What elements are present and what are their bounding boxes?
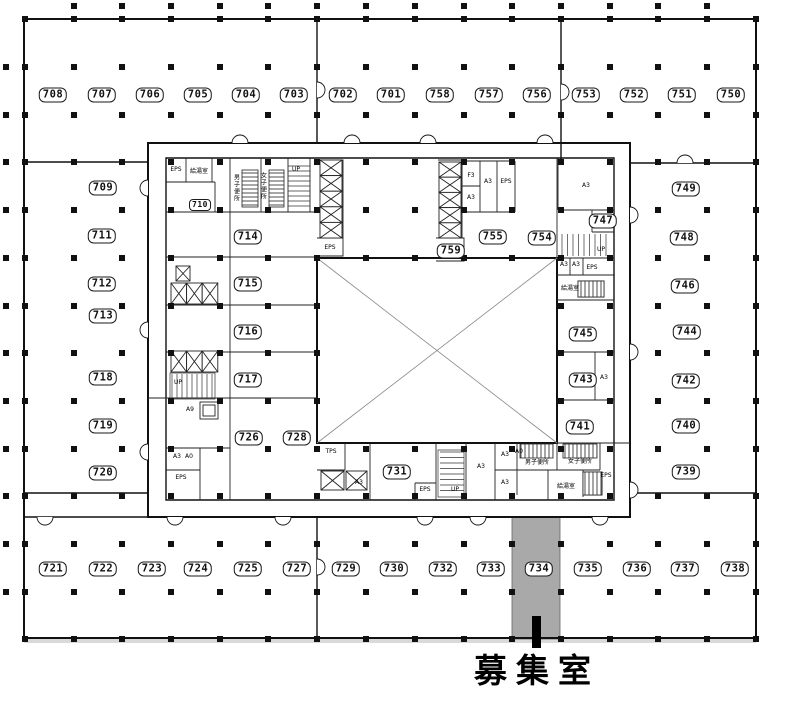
- room-badge-750: 750: [717, 88, 745, 103]
- utility-label: A0: [185, 454, 193, 460]
- floor-plan-drawing: [0, 0, 787, 718]
- utility-label: TPS: [325, 449, 336, 455]
- room-badge-756: 756: [523, 88, 551, 103]
- room-badge-737: 737: [671, 562, 699, 577]
- utility-label: EPS: [170, 167, 181, 173]
- utility-label: 女子便所: [260, 172, 267, 200]
- room-badge-703: 703: [280, 88, 308, 103]
- room-badge-725: 725: [234, 562, 262, 577]
- utility-label: A3: [501, 452, 509, 458]
- utility-label: A3: [501, 480, 509, 486]
- utility-label: EPS: [600, 473, 611, 479]
- utility-label: EPS: [175, 475, 186, 481]
- utility-label: A9: [186, 407, 194, 413]
- room-badge-752: 752: [620, 88, 648, 103]
- room-badge-758: 758: [426, 88, 454, 103]
- room-badge-722: 722: [89, 562, 117, 577]
- utility-label: EPS: [500, 179, 511, 185]
- room-badge-702: 702: [329, 88, 357, 103]
- room-badge-748: 748: [670, 231, 698, 246]
- room-badge-727: 727: [283, 562, 311, 577]
- utility-label: A3: [484, 179, 492, 185]
- utility-label: F3: [467, 173, 474, 179]
- courtyard-x-diagonals: [317, 258, 557, 443]
- room-badge-720: 720: [89, 466, 117, 481]
- room-badge-732: 732: [429, 562, 457, 577]
- room-badge-741: 741: [566, 420, 594, 435]
- room-badge-759: 759: [437, 244, 465, 259]
- utility-label: UP: [451, 487, 459, 493]
- utility-label: A3: [477, 464, 485, 470]
- room-badge-726: 726: [235, 431, 263, 446]
- room-badge-708: 708: [39, 88, 67, 103]
- utility-label: UP: [174, 380, 182, 386]
- room-badge-757: 757: [475, 88, 503, 103]
- utility-label: A3: [600, 375, 608, 381]
- room-badge-710: 710: [189, 199, 211, 211]
- room-badge-723: 723: [138, 562, 166, 577]
- room-badge-704: 704: [232, 88, 260, 103]
- ground-line: [24, 639, 756, 643]
- utility-label: 男子便所: [525, 460, 549, 466]
- room-badge-755: 755: [479, 230, 507, 245]
- utility-label: A3: [173, 454, 181, 460]
- room-badge-709: 709: [89, 181, 117, 196]
- utility-label: 給湯室: [561, 286, 579, 292]
- room-badge-738: 738: [721, 562, 749, 577]
- utility-label: 男子便所: [233, 174, 240, 202]
- room-badge-746: 746: [671, 279, 699, 294]
- room-badge-711: 711: [88, 229, 116, 244]
- room-badge-745: 745: [569, 327, 597, 342]
- utility-label: A3: [560, 262, 568, 268]
- room-badge-731: 731: [383, 465, 411, 480]
- room-badge-751: 751: [668, 88, 696, 103]
- available-room-label: 募集室: [474, 644, 600, 692]
- utility-label: 給湯室: [190, 169, 208, 175]
- room-badge-754: 754: [528, 231, 556, 246]
- room-badge-724: 724: [184, 562, 212, 577]
- room-badge-753: 753: [572, 88, 600, 103]
- toilet-stalls-hatching: [242, 170, 604, 495]
- room-badge-721: 721: [39, 562, 67, 577]
- utility-label: EPS: [324, 245, 335, 251]
- utility-label: A3: [355, 480, 363, 486]
- utility-label: UP: [292, 167, 300, 173]
- room-badge-707: 707: [88, 88, 116, 103]
- utility-label: 給湯室: [557, 484, 575, 490]
- room-badge-713: 713: [89, 309, 117, 324]
- utility-label: 女子便所: [568, 459, 592, 465]
- room-badge-717: 717: [234, 373, 262, 388]
- floor-plan: 7087077067057047037027017587577567537527…: [0, 0, 787, 718]
- room-badge-716: 716: [234, 325, 262, 340]
- room-badge-706: 706: [136, 88, 164, 103]
- room-badge-718: 718: [89, 371, 117, 386]
- utility-label: A3: [467, 195, 475, 201]
- room-badge-734: 734: [525, 562, 553, 577]
- room-badge-736: 736: [623, 562, 651, 577]
- room-badge-743: 743: [569, 373, 597, 388]
- secondary-walls: [24, 19, 756, 638]
- utility-label: A3: [572, 262, 580, 268]
- room-badge-749: 749: [672, 182, 700, 197]
- room-badge-730: 730: [380, 562, 408, 577]
- utility-label: EPS: [419, 487, 430, 493]
- room-badge-705: 705: [184, 88, 212, 103]
- room-badge-714: 714: [234, 230, 262, 245]
- room-badge-728: 728: [283, 431, 311, 446]
- room-badge-719: 719: [89, 419, 117, 434]
- room-badge-739: 739: [672, 465, 700, 480]
- room-badge-740: 740: [672, 419, 700, 434]
- room-badge-701: 701: [377, 88, 405, 103]
- utility-label: A3: [582, 183, 590, 189]
- utility-label: EPS: [586, 265, 597, 271]
- room-badge-747: 747: [589, 214, 617, 229]
- room-badge-712: 712: [88, 277, 116, 292]
- utility-label: UP: [597, 247, 605, 253]
- room-badge-733: 733: [477, 562, 505, 577]
- main-walls: [24, 19, 756, 638]
- room-badge-735: 735: [574, 562, 602, 577]
- room-badge-742: 742: [672, 374, 700, 389]
- room-badge-715: 715: [234, 277, 262, 292]
- utility-label: A0: [515, 449, 523, 455]
- room-badge-744: 744: [673, 325, 701, 340]
- room-badge-729: 729: [332, 562, 360, 577]
